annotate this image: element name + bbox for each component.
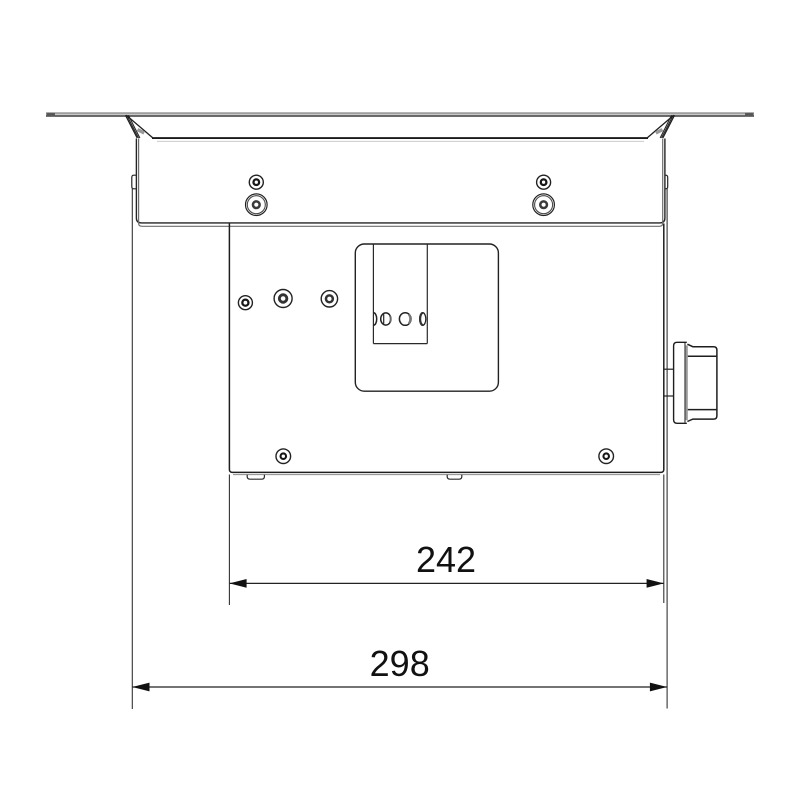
svg-text:242: 242 [416, 539, 476, 580]
svg-text:298: 298 [370, 643, 430, 684]
